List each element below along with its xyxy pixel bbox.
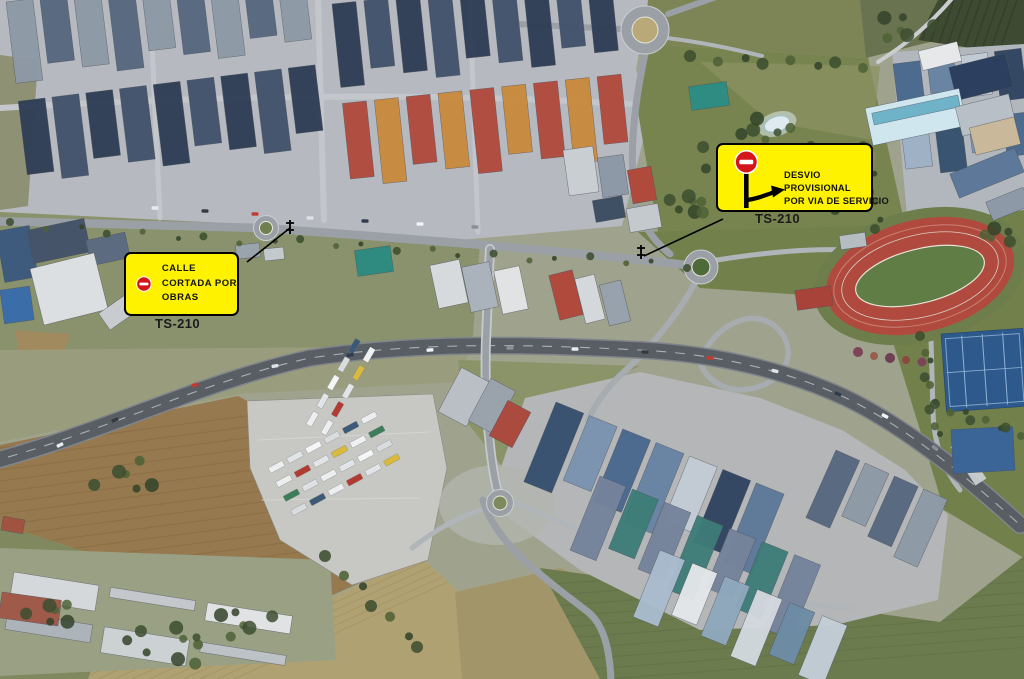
road-label-ts210-west: TS-210 [155,316,200,331]
closure-line-3: OBRAS [162,291,237,306]
tennis-courts [941,328,1024,412]
closure-line-1: CALLE [162,262,237,277]
no-entry-icon [135,269,153,299]
detour-callout: DESVIO PROVISIONAL POR VIA DE SERVICIO [716,143,873,212]
detour-line-3: POR VIA DE SERVICIO [784,195,889,208]
aerial-map-image [0,0,1024,679]
screenshot-root: CALLE CORTADA POR OBRAS DESVIO PROVISION… [0,0,1024,679]
closure-callout-text: CALLE CORTADA POR OBRAS [162,262,237,306]
closure-callout: CALLE CORTADA POR OBRAS [124,252,239,316]
road-label-ts210-east: TS-210 [755,211,800,226]
detour-arrow-icon [746,186,785,201]
closure-line-2: CORTADA POR [162,277,237,292]
detour-line-1: DESVIO [784,169,889,182]
detour-callout-text: DESVIO PROVISIONAL POR VIA DE SERVICIO [784,169,889,209]
detour-line-2: PROVISIONAL [784,182,889,195]
